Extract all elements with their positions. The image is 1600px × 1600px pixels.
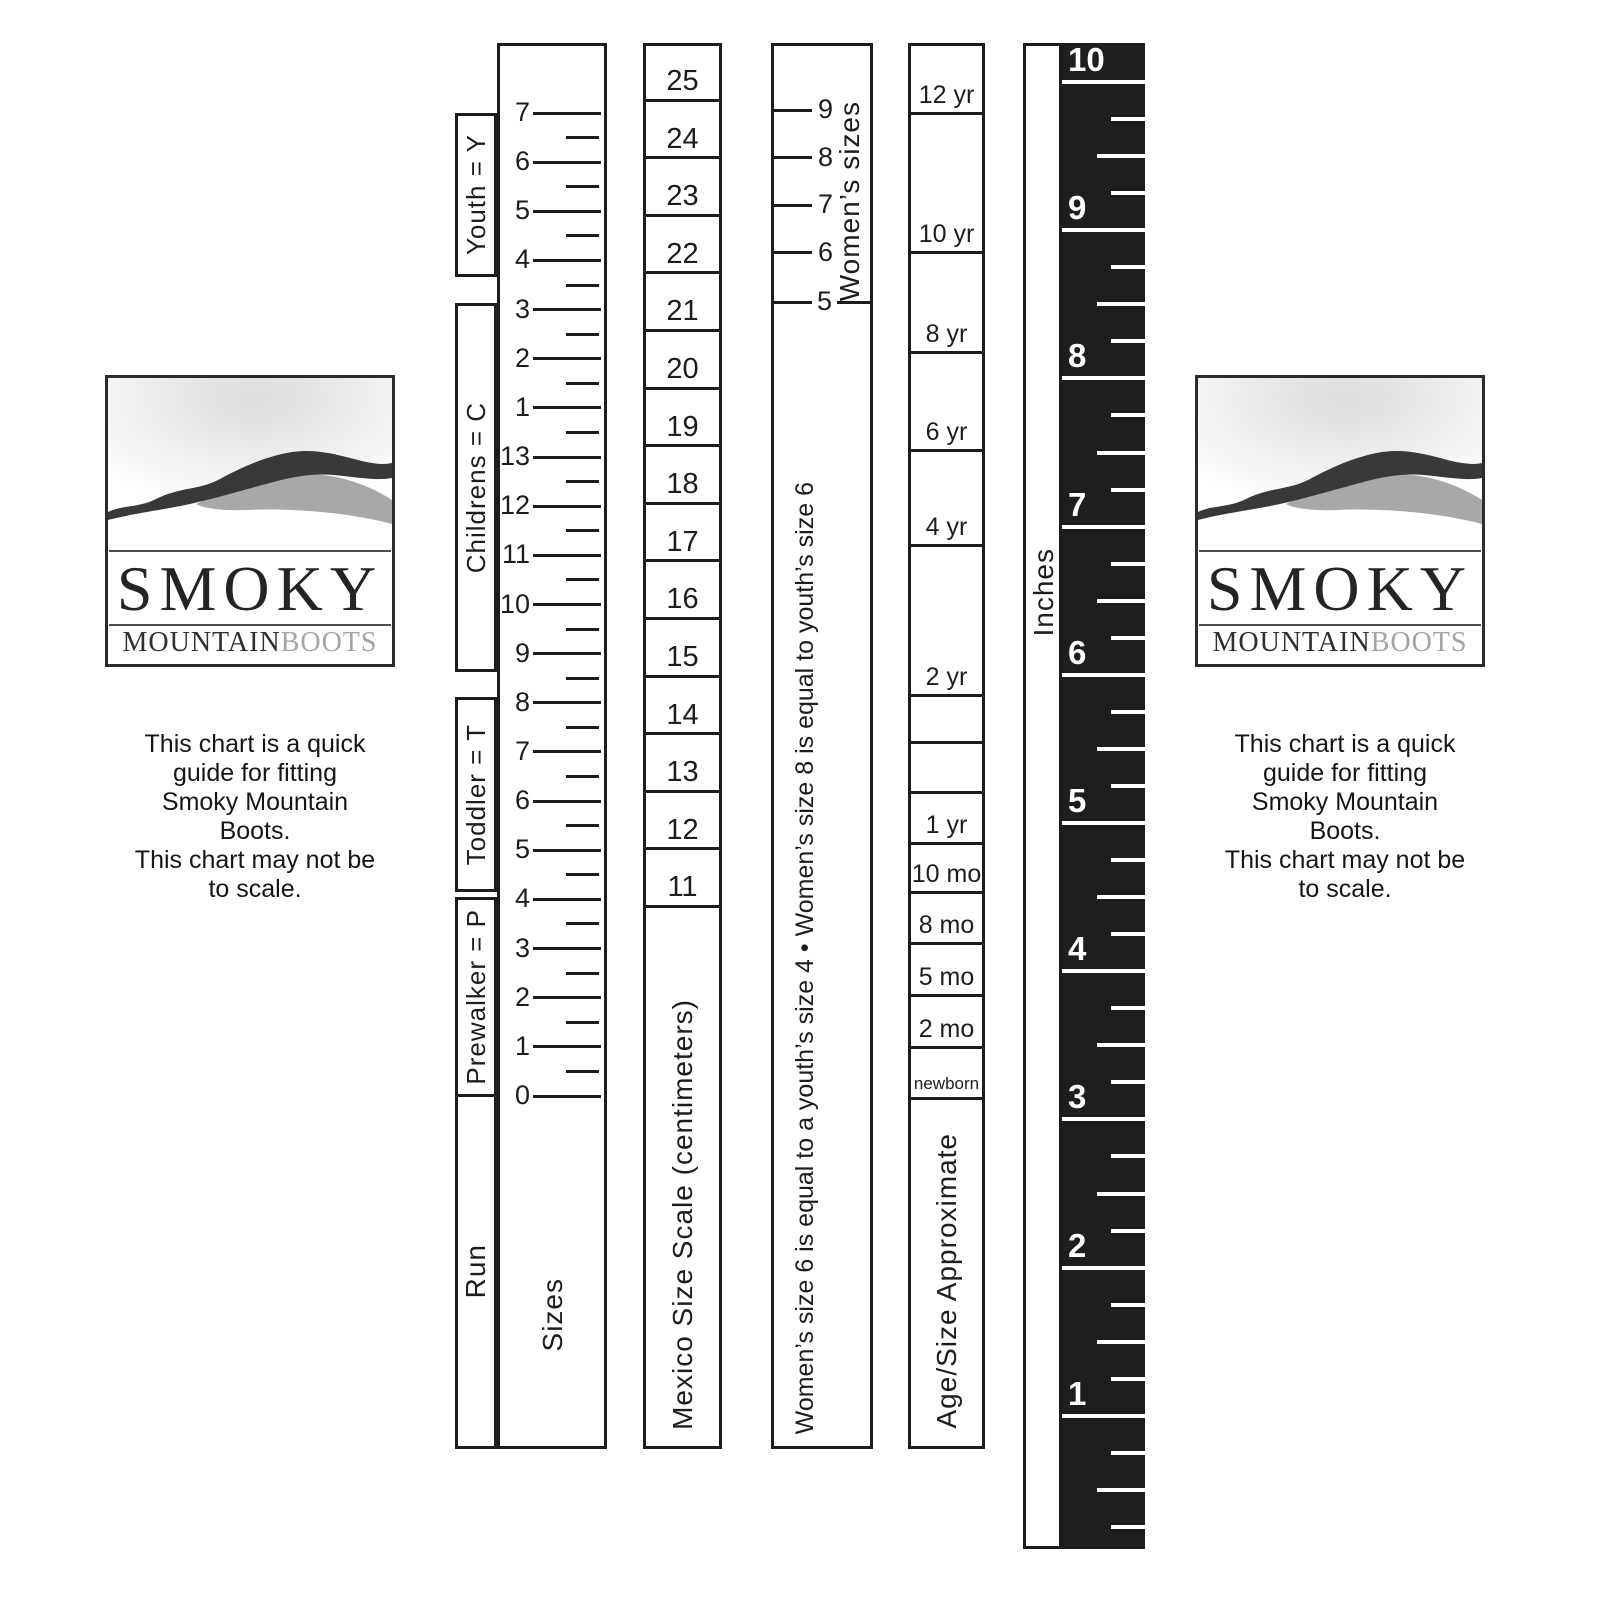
minor-tick (566, 529, 599, 532)
tick-label: 13 (500, 441, 530, 471)
inch-line (1062, 821, 1145, 825)
womens-equivalence-note: Women’s size 6 is equal to a youth’s siz… (791, 482, 820, 1434)
cell-divider (646, 387, 719, 390)
cell-divider (646, 905, 719, 908)
tick-label: 6 (500, 146, 530, 176)
quarter-inch-tick (1111, 1154, 1145, 1158)
half-inch-tick (1097, 1488, 1145, 1492)
tick-label: 3 (500, 933, 530, 963)
run-bracket-label: Childrens = C (461, 402, 492, 573)
info-note-left: This chart is a quick guide for fitting … (95, 730, 415, 904)
size-chart-canvas: SMOKY MOUNTAINBOOTS SMOKY MOUNTAINBOOTS … (0, 0, 1600, 1600)
cell-divider (911, 842, 982, 845)
mexico-size-label: 16 (646, 582, 719, 616)
quarter-inch-tick (1111, 265, 1145, 269)
tick-label: 5 (500, 834, 530, 864)
logo-subtitle-boots: BOOTS (1371, 627, 1468, 658)
minor-tick (566, 382, 599, 385)
quarter-inch-tick (1111, 1303, 1145, 1307)
womens-tick-label: 8 (818, 142, 833, 172)
cell-divider (911, 942, 982, 945)
logo-mountain-art (1198, 378, 1482, 550)
quarter-inch-tick (1111, 1229, 1145, 1233)
womens-tick-label: 9 (818, 94, 833, 124)
run-bracket-label: Toddler = T (461, 724, 492, 865)
inch-number: 8 (1068, 337, 1086, 375)
cell-divider (911, 994, 982, 997)
mexico-size-label: 11 (646, 870, 719, 904)
quarter-inch-tick (1111, 784, 1145, 788)
mexico-size-label: 12 (646, 813, 719, 847)
major-tick (533, 996, 601, 999)
womens-boundary-label: 5 (812, 286, 837, 316)
mexico-size-label: 13 (646, 755, 719, 789)
minor-tick (566, 972, 599, 975)
womens-sizes-label: Women’s sizes (834, 101, 866, 301)
cell-divider (911, 891, 982, 894)
major-tick (533, 1095, 601, 1098)
mexico-size-label: 22 (646, 237, 719, 271)
womens-tick (774, 156, 812, 159)
quarter-inch-tick (1111, 1525, 1145, 1529)
tick-label: 3 (500, 294, 530, 324)
major-tick (533, 357, 601, 360)
cell-divider (646, 732, 719, 735)
quarter-inch-tick (1111, 1080, 1145, 1084)
logo-subtitle: MOUNTAINBOOTS (108, 626, 392, 660)
inch-number: 5 (1068, 782, 1086, 820)
minor-tick (566, 824, 599, 827)
major-tick (533, 308, 601, 311)
major-tick (533, 1045, 601, 1048)
inch-line (1062, 1117, 1145, 1121)
cell-divider (911, 251, 982, 254)
major-tick (533, 259, 601, 262)
age-cell-label: 6 yr (911, 418, 982, 446)
major-tick (533, 210, 601, 213)
tick-label: 2 (500, 982, 530, 1012)
cell-divider (911, 544, 982, 547)
womens-tick-label: 6 (818, 237, 833, 267)
quarter-inch-tick (1111, 1377, 1145, 1381)
inch-number: 7 (1068, 486, 1086, 524)
tick-label: 0 (500, 1080, 530, 1110)
brand-logo-left: SMOKY MOUNTAINBOOTS (105, 375, 395, 667)
cell-divider (911, 449, 982, 452)
minor-tick (566, 677, 599, 680)
cell-divider (646, 156, 719, 159)
logo-mountain-art (108, 378, 392, 550)
minor-tick (566, 431, 599, 434)
age-scale-label: Age/Size Approximate (931, 1133, 963, 1429)
mountain-icon (108, 378, 392, 550)
cell-divider (646, 214, 719, 217)
age-cell-label: 10 yr (911, 220, 982, 248)
logo-title: SMOKY (108, 552, 392, 624)
cell-divider (646, 790, 719, 793)
major-tick (533, 406, 601, 409)
inches-label-strip: Inches (1023, 43, 1062, 1549)
major-tick (533, 800, 601, 803)
tick-label: 4 (500, 883, 530, 913)
quarter-inch-tick (1111, 488, 1145, 492)
age-cell-label: 8 yr (911, 320, 982, 348)
major-tick (533, 898, 601, 901)
inches-ruler: 10987654321 (1062, 43, 1145, 1549)
tick-label: 9 (500, 638, 530, 668)
major-tick (533, 112, 601, 115)
half-inch-tick (1097, 895, 1145, 899)
mexico-size-label: 24 (646, 122, 719, 156)
mexico-scale-label: Mexico Size Scale (centimeters) (667, 999, 699, 1430)
cell-divider (911, 351, 982, 354)
quarter-inch-tick (1111, 413, 1145, 417)
half-inch-tick (1097, 1340, 1145, 1344)
womens-tick (774, 204, 812, 207)
minor-tick (566, 578, 599, 581)
age-cell-label: 8 mo (911, 911, 982, 939)
tick-label: 5 (500, 195, 530, 225)
inch-number: 6 (1068, 634, 1086, 672)
run-bracket-label: Youth = Y (461, 134, 492, 255)
minor-tick (566, 234, 599, 237)
minor-tick (566, 185, 599, 188)
age-cell-label: newborn (911, 1074, 982, 1094)
info-note-right: This chart is a quick guide for fitting … (1185, 730, 1505, 904)
tick-label: 7 (500, 97, 530, 127)
mexico-size-label: 23 (646, 179, 719, 213)
inch-line (1062, 80, 1145, 84)
cell-divider (646, 559, 719, 562)
inches-scale-label: Inches (1028, 548, 1060, 637)
half-inch-tick (1097, 1043, 1145, 1047)
minor-tick (566, 726, 599, 729)
quarter-inch-tick (1111, 1006, 1145, 1010)
mexico-size-label: 21 (646, 294, 719, 328)
inch-number: 1 (1068, 1375, 1086, 1413)
inch-line (1062, 1266, 1145, 1270)
cell-divider (646, 617, 719, 620)
run-bracket: Prewalker = P (455, 897, 497, 1097)
cell-divider (911, 1046, 982, 1049)
quarter-inch-tick (1111, 1451, 1145, 1455)
cell-divider (911, 741, 982, 744)
mexico-size-ruler: 252423222120191817161514131211Mexico Siz… (643, 43, 722, 1449)
cell-divider (646, 675, 719, 678)
minor-tick (566, 775, 599, 778)
cell-divider (646, 329, 719, 332)
major-tick (533, 603, 601, 606)
major-tick (533, 161, 601, 164)
inch-line (1062, 525, 1145, 529)
quarter-inch-tick (1111, 191, 1145, 195)
tick-label: 4 (500, 244, 530, 274)
age-cell-label: 2 yr (911, 663, 982, 691)
mexico-size-label: 17 (646, 525, 719, 559)
half-inch-tick (1097, 599, 1145, 603)
minor-tick (566, 480, 599, 483)
mexico-size-label: 19 (646, 410, 719, 444)
minor-tick (566, 333, 599, 336)
logo-subtitle: MOUNTAINBOOTS (1198, 626, 1482, 660)
mexico-size-label: 20 (646, 352, 719, 386)
half-inch-tick (1097, 302, 1145, 306)
run-bracket: Childrens = C (455, 303, 497, 672)
major-tick (533, 947, 601, 950)
logo-subtitle-mountain: MOUNTAIN (1213, 627, 1371, 658)
run-bracket: Youth = Y (455, 113, 497, 277)
quarter-inch-tick (1111, 562, 1145, 566)
quarter-inch-tick (1111, 858, 1145, 862)
minor-tick (566, 1021, 599, 1024)
inch-line (1062, 228, 1145, 232)
major-tick (533, 554, 601, 557)
logo-subtitle-boots: BOOTS (281, 627, 378, 658)
cell-divider (911, 694, 982, 697)
cell-divider (646, 444, 719, 447)
major-tick (533, 456, 601, 459)
womens-sizes-ruler: 98765Women’s sizesWomen’s size 6 is equa… (771, 43, 873, 1449)
run-column-label: Run (460, 1244, 492, 1298)
major-tick (533, 849, 601, 852)
run-bracket: Toddler = T (455, 697, 497, 892)
cell-divider (911, 112, 982, 115)
half-inch-tick (1097, 747, 1145, 751)
tick-label: 7 (500, 736, 530, 766)
tick-label: 11 (500, 539, 530, 569)
minor-tick (566, 628, 599, 631)
tick-label: 1 (500, 392, 530, 422)
mexico-size-label: 15 (646, 640, 719, 674)
sizes-scale-label: Sizes (537, 1278, 569, 1351)
major-tick (533, 505, 601, 508)
age-cell-label: 2 mo (911, 1015, 982, 1043)
tick-label: 8 (500, 687, 530, 717)
half-inch-tick (1097, 154, 1145, 158)
inch-number: 10 (1068, 41, 1105, 79)
age-size-ruler: 12 yr10 yr8 yr6 yr4 yr2 yr1 yr10 mo8 mo5… (908, 43, 985, 1449)
tick-label: 6 (500, 785, 530, 815)
womens-tick-label: 7 (818, 189, 833, 219)
cell-divider (646, 271, 719, 274)
womens-tick (774, 251, 812, 254)
tick-label: 10 (500, 589, 530, 619)
logo-subtitle-mountain: MOUNTAIN (123, 627, 281, 658)
half-inch-tick (1097, 451, 1145, 455)
age-cell-label: 10 mo (911, 860, 982, 888)
logo-title: SMOKY (1198, 552, 1482, 624)
inch-number: 9 (1068, 189, 1086, 227)
quarter-inch-tick (1111, 636, 1145, 640)
mexico-size-label: 14 (646, 698, 719, 732)
inch-line (1062, 673, 1145, 677)
minor-tick (566, 1070, 599, 1073)
half-inch-tick (1097, 1192, 1145, 1196)
age-cell-label: 5 mo (911, 963, 982, 991)
age-cell-label: 12 yr (911, 81, 982, 109)
quarter-inch-tick (1111, 710, 1145, 714)
major-tick (533, 750, 601, 753)
sizes-ruler: 7654321131211109876543210Sizes (497, 43, 607, 1449)
inch-line (1062, 376, 1145, 380)
tick-label: 2 (500, 343, 530, 373)
minor-tick (566, 873, 599, 876)
age-cell-label: 1 yr (911, 811, 982, 839)
quarter-inch-tick (1111, 339, 1145, 343)
cell-divider (646, 847, 719, 850)
tick-label: 1 (500, 1031, 530, 1061)
run-column-box: Run (455, 1094, 497, 1449)
minor-tick (566, 922, 599, 925)
womens-tick (774, 109, 812, 112)
major-tick (533, 701, 601, 704)
inch-number: 3 (1068, 1078, 1086, 1116)
minor-tick (566, 284, 599, 287)
mountain-icon (1198, 378, 1482, 550)
inch-line (1062, 1414, 1145, 1418)
quarter-inch-tick (1111, 117, 1145, 121)
brand-logo-right: SMOKY MOUNTAINBOOTS (1195, 375, 1485, 667)
inch-number: 2 (1068, 1227, 1086, 1265)
tick-label: 12 (500, 490, 530, 520)
cell-divider (911, 1097, 982, 1100)
cell-divider (911, 791, 982, 794)
inch-number: 4 (1068, 930, 1086, 968)
mexico-size-label: 25 (646, 64, 719, 98)
age-cell-label: 4 yr (911, 513, 982, 541)
cell-divider (646, 502, 719, 505)
minor-tick (566, 136, 599, 139)
inch-line (1062, 969, 1145, 973)
quarter-inch-tick (1111, 932, 1145, 936)
run-bracket-label: Prewalker = P (461, 909, 492, 1085)
major-tick (533, 652, 601, 655)
cell-divider (646, 99, 719, 102)
mexico-size-label: 18 (646, 467, 719, 501)
